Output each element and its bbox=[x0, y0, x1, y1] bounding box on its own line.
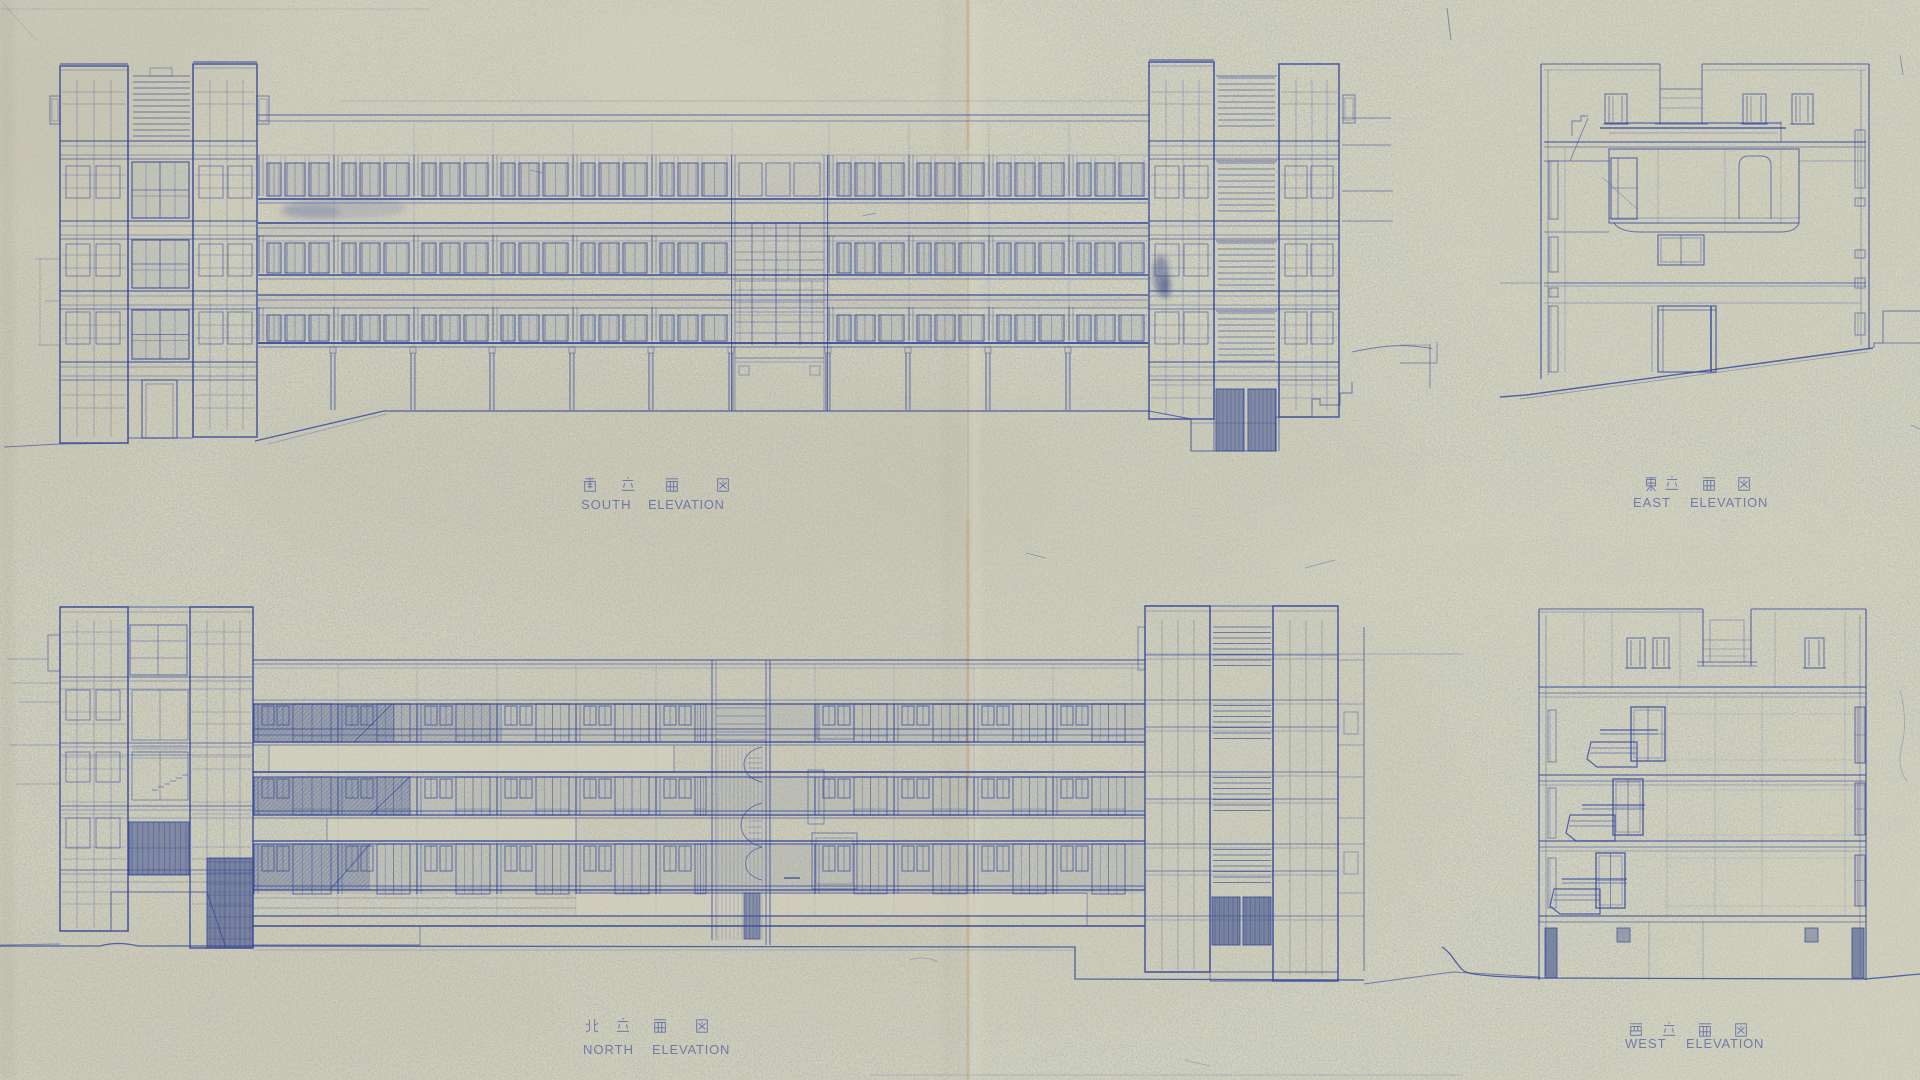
svg-text:WEST: WEST bbox=[1625, 1036, 1667, 1051]
svg-text:EAST: EAST bbox=[1633, 495, 1671, 510]
svg-text:ELEVATION: ELEVATION bbox=[652, 1042, 730, 1057]
svg-text:NORTH: NORTH bbox=[583, 1042, 634, 1057]
svg-text:ELEVATION: ELEVATION bbox=[1686, 1036, 1764, 1051]
svg-text:ELEVATION: ELEVATION bbox=[1690, 495, 1768, 510]
svg-text:ELEVATION: ELEVATION bbox=[648, 497, 724, 512]
svg-text:SOUTH: SOUTH bbox=[581, 497, 632, 512]
